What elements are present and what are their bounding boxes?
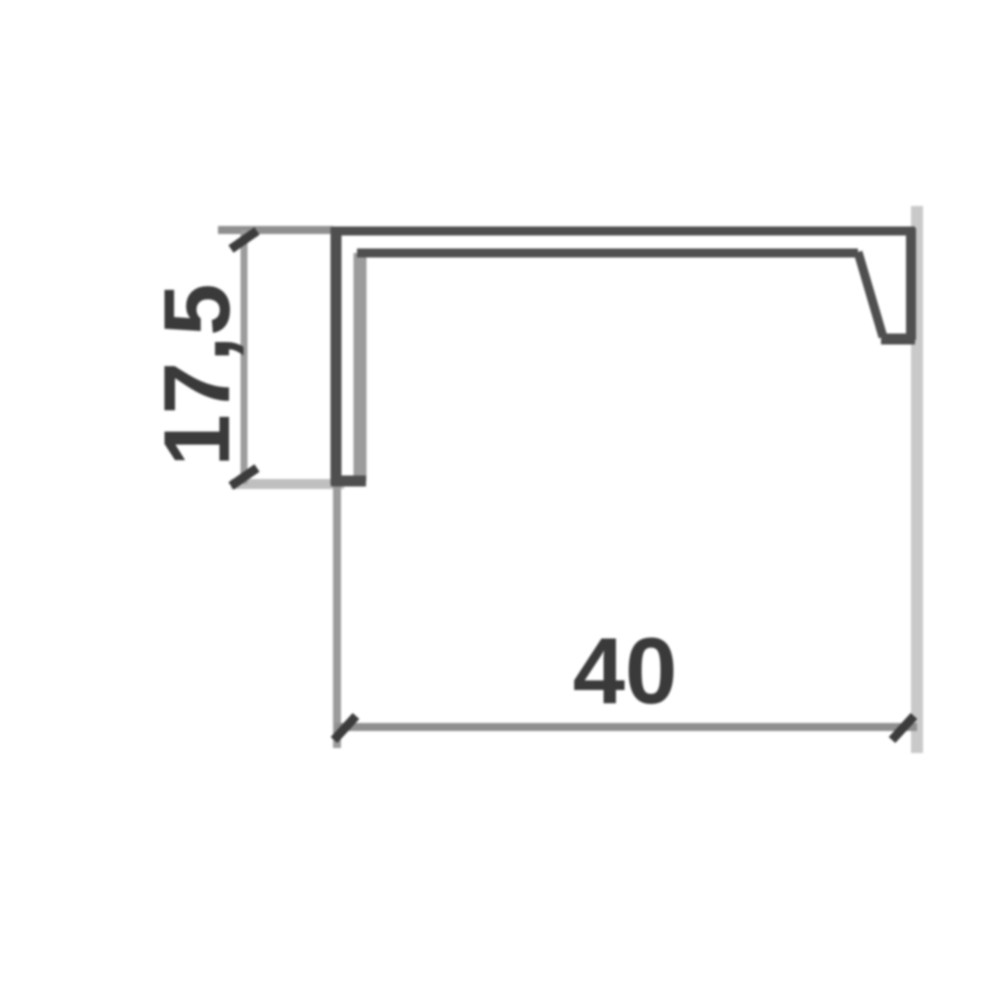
width-dimension-label: 40 bbox=[573, 618, 678, 723]
technical-drawing-canvas: 17,5 40 bbox=[0, 0, 1000, 1000]
profile-clip-hook-diagonal bbox=[858, 252, 883, 337]
height-dimension-label: 17,5 bbox=[144, 284, 249, 467]
profile-dimension-drawing: 17,5 40 bbox=[0, 0, 1000, 1000]
